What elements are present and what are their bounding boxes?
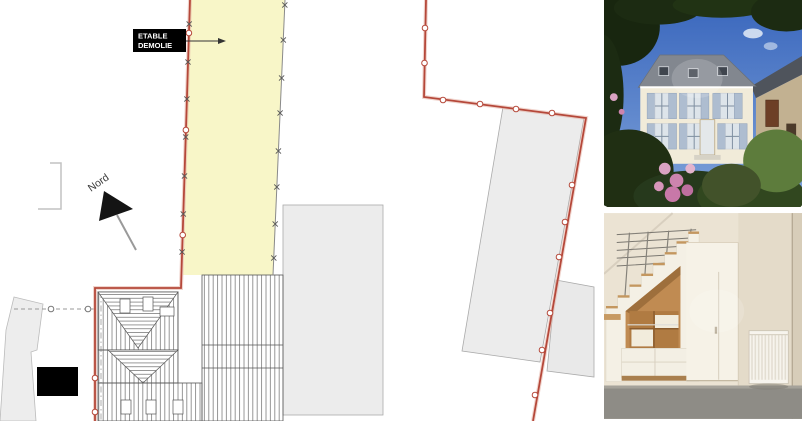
dormer (143, 297, 153, 311)
neighbour-parcel (0, 297, 43, 421)
survey-point (48, 306, 54, 312)
site-plan: ETABLE DEMOLIE Nord (0, 0, 602, 421)
north-label: Nord (86, 171, 112, 194)
base-cabinets (622, 348, 689, 380)
radiator (749, 331, 788, 390)
page: ETABLE DEMOLIE Nord (0, 0, 802, 421)
chimney (121, 400, 131, 414)
north-arrow: Nord (86, 171, 136, 250)
concrete-floor (604, 386, 802, 419)
roof-window (659, 67, 669, 76)
wood-plinth (622, 376, 689, 381)
dormer (160, 307, 174, 316)
window-shuttered (718, 124, 747, 149)
callout-text-line1: ETABLE (138, 32, 167, 41)
north-arrow-triangle (99, 191, 133, 221)
house-exterior-illustration (604, 0, 802, 207)
window-shuttered (647, 93, 676, 118)
bottom-landing-tread (604, 314, 621, 320)
photo-interior-staircase (604, 211, 802, 421)
radiator-shadow (749, 384, 788, 390)
window-shuttered (713, 93, 742, 118)
cloud (743, 29, 763, 39)
front-door (700, 120, 715, 155)
barn-building (202, 275, 283, 421)
watermark (689, 290, 744, 333)
white-cubby (655, 315, 679, 329)
cloud (764, 42, 778, 50)
barn-door (766, 100, 779, 126)
solid-black-building (37, 367, 78, 396)
site-plan-drawing: ETABLE DEMOLIE Nord (0, 0, 602, 421)
callout-text-line2: DEMOLIE (138, 41, 172, 50)
chimney (146, 400, 156, 414)
survey-point (85, 306, 91, 312)
large-gray-building (283, 205, 383, 415)
chimney (173, 400, 183, 414)
white-cubby (631, 329, 653, 347)
door-steps (694, 155, 720, 160)
watermark (672, 59, 723, 98)
photo-column (602, 0, 802, 421)
photo-house-exterior (604, 0, 802, 207)
north-arrow-tail (117, 215, 136, 250)
dormer (120, 299, 130, 313)
main-house-roofplan (98, 292, 202, 421)
wall-bracket-outline (38, 163, 61, 209)
interior-staircase-illustration (604, 211, 802, 421)
